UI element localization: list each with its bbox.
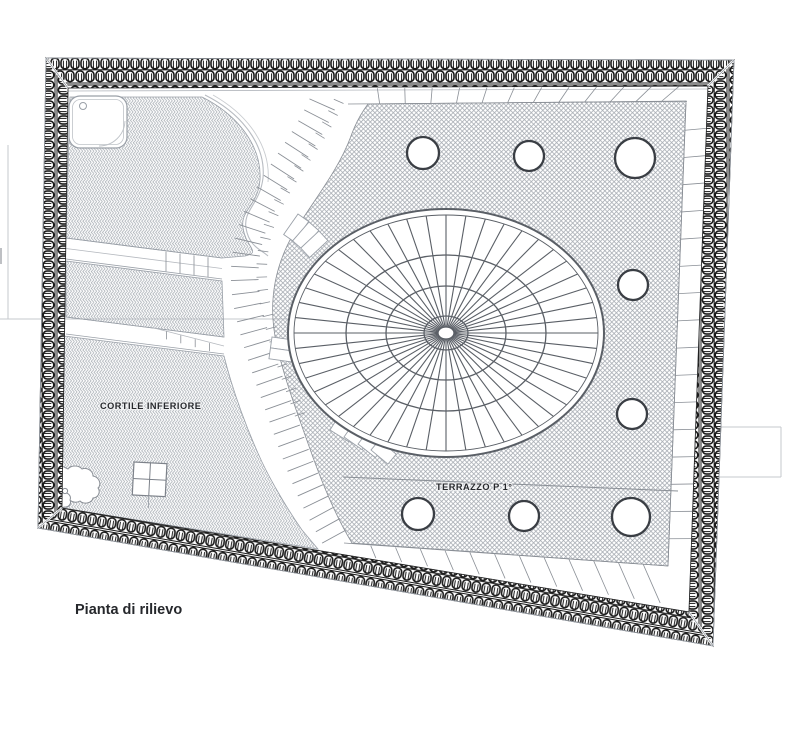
survey-plan-drawing: TERRAZZO P 1° CORTILE INFERIORE Pianta d… [0, 0, 800, 730]
skylight-circle [514, 141, 544, 171]
drawing-caption: Pianta di rilievo [75, 602, 182, 618]
terrace-label: TERRAZZO P 1° [436, 482, 512, 492]
pavilion [69, 96, 127, 148]
skylight-circle [615, 138, 655, 178]
skylight-circle [407, 137, 439, 169]
courtyard-label: CORTILE INFERIORE [100, 401, 201, 411]
rosette [288, 209, 604, 457]
skylight-circle [618, 270, 648, 300]
skylight-circle [509, 501, 539, 531]
chain-border-top [46, 58, 734, 88]
skylight-circle [617, 399, 647, 429]
pavilion-dot [80, 103, 87, 110]
skylight-circle [402, 498, 434, 530]
skylight-circle [612, 498, 650, 536]
bush-dot [62, 488, 67, 493]
